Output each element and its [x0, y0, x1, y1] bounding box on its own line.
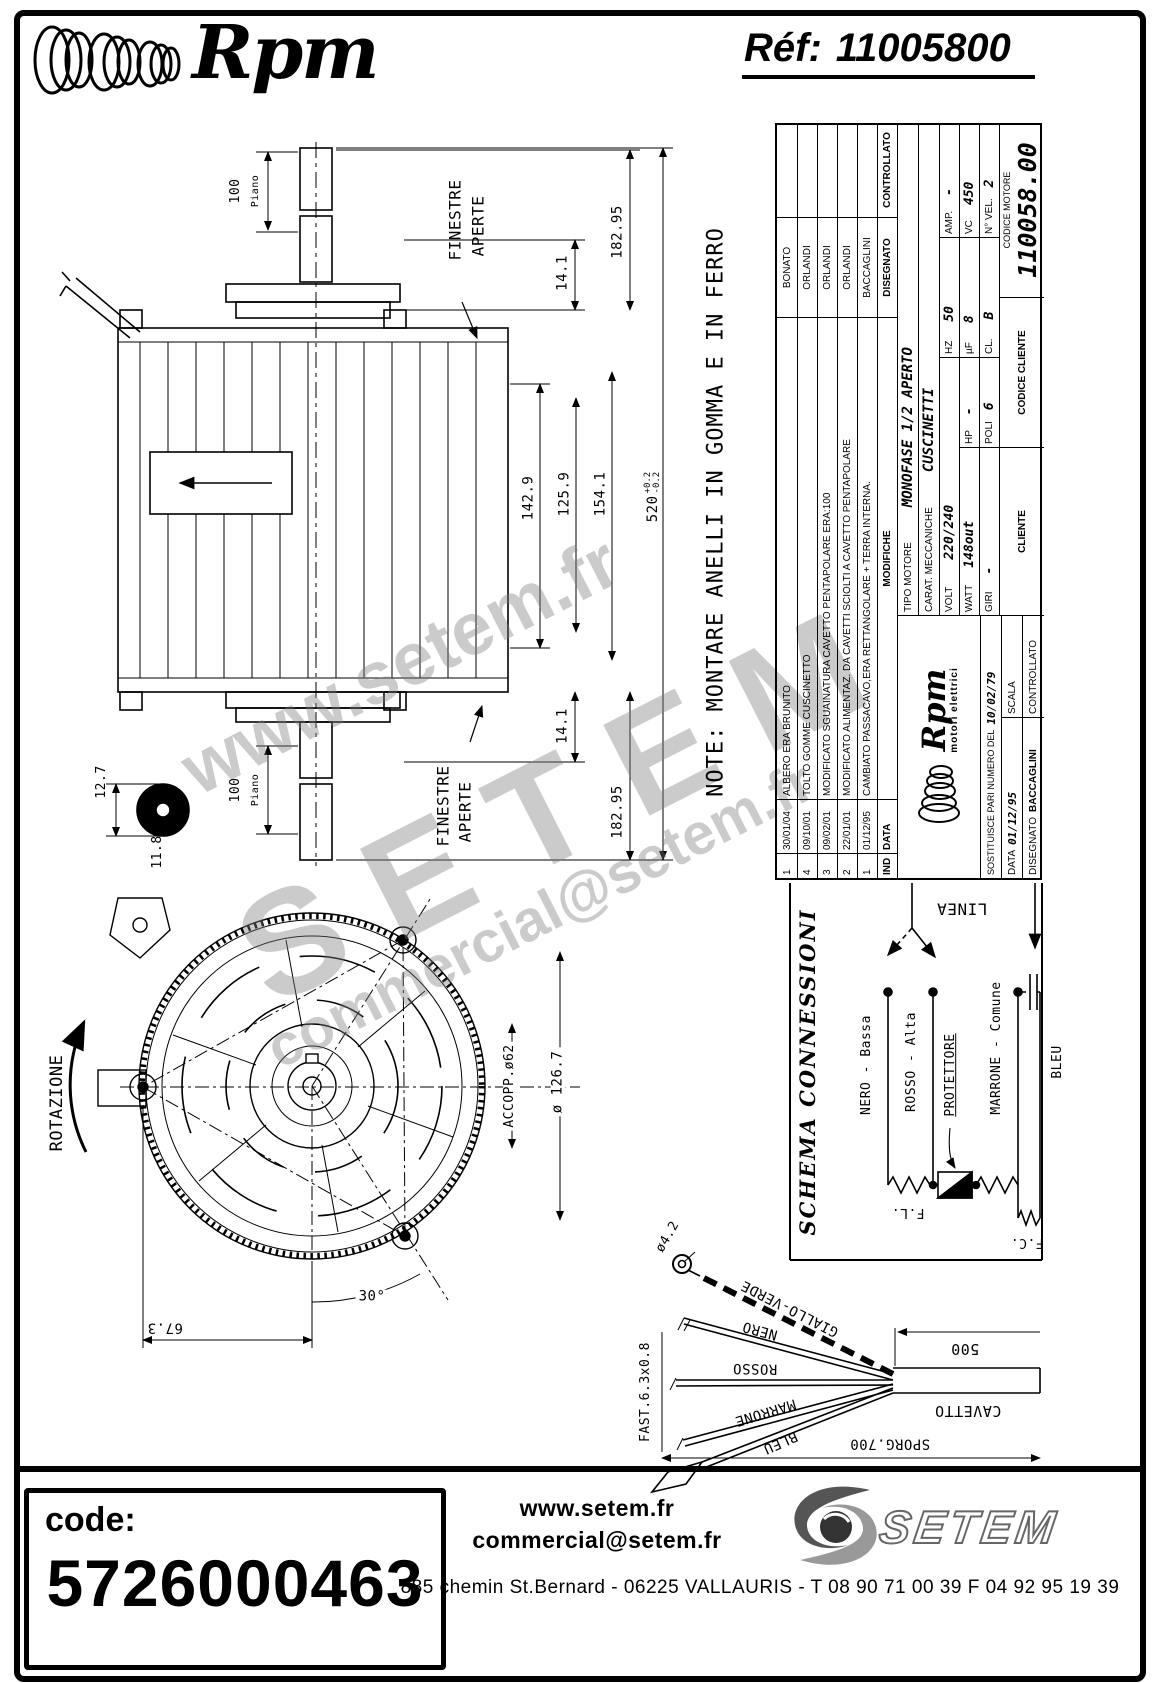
hp-cell: HP-	[959, 358, 979, 448]
rev-header-disegnato: DISEGNATO	[877, 218, 897, 318]
dim-67-3: 67.3	[144, 1320, 186, 1335]
rev-ind: 3	[817, 854, 837, 878]
poli-cell: POLI6	[979, 358, 999, 448]
rev-ind: 1	[777, 854, 797, 878]
rev-text: CAMBIATO PASSACAVO,ERA RETTANGOLARE + TE…	[857, 318, 877, 800]
dim-126-7: ø 126.7	[551, 1048, 566, 1117]
cliente-cell: CLIENTE	[999, 448, 1044, 616]
rev-controllato-cell	[837, 123, 857, 218]
footer-address: 885 chemin St.Bernard - 06225 VALLAURIS …	[401, 1578, 1120, 1598]
dim-520-value: 520	[645, 495, 661, 522]
dim-182-95-top: 182.95	[611, 202, 626, 262]
footer-email: commercial@setem.fr	[472, 1528, 721, 1552]
dim-520-tolerance: +0.2-0.2	[644, 472, 662, 494]
finestre-top-1: FINESTRE	[448, 179, 465, 260]
wire-rosso-alta: ROSSO - Alta	[905, 1012, 919, 1112]
codice-motore-value: 110058.00	[1013, 142, 1042, 277]
rev-date: 30/01/04	[777, 800, 797, 854]
rev-name: BACCAGLINI	[857, 218, 877, 318]
cl-cell: CL.B	[979, 238, 999, 358]
dim-30-deg: 30°	[356, 1290, 389, 1305]
dim-14-1-bottom: 14.1	[556, 705, 571, 747]
dim-12-7: 12.7	[95, 765, 109, 798]
codice-motore-label: CODICE MOTORE	[1002, 172, 1012, 249]
piano-label-bottom: Piano	[251, 774, 262, 807]
rev-controllato-cell	[777, 123, 797, 218]
data-cell: DATA01/12/95	[1001, 718, 1022, 878]
finestre-bottom-1: FINESTRE	[436, 765, 453, 846]
vc-cell: VC450	[959, 123, 979, 238]
rev-ind: 2	[837, 854, 857, 878]
titleblock-rpm-text: Rpm	[919, 667, 949, 752]
fl-label: F.L.	[891, 1205, 924, 1219]
rev-controllato-cell	[797, 123, 817, 218]
rev-date: 09/10/01	[797, 800, 817, 854]
finestre-bottom-2: APERTE	[458, 782, 475, 843]
rpm-coils-small-icon	[911, 763, 967, 827]
dim-accopp-62: ACCOPP.ø62	[503, 1041, 517, 1130]
dim-142-9: 142.9	[522, 473, 537, 524]
sostituisce-cell: SOSTITUISCE PARI NUMERO DEL10/02/79	[980, 616, 1001, 878]
title-block: 1 30/01/04 ALBERO ERA BRUNITO BONATO 4 0…	[775, 123, 1042, 880]
dim-154-1: 154.1	[594, 469, 609, 520]
ref-number-block: Réf:11005800	[742, 26, 1035, 79]
rev-date: 09/02/01	[817, 800, 837, 854]
sporg-label: SPORG.700	[847, 1436, 933, 1451]
rotazione-label: ROTAZIONE	[49, 1055, 67, 1152]
schema-title: SCHEMA CONNESSIONI	[797, 909, 819, 1236]
cavetto-label: CAVETTO	[935, 1402, 1002, 1418]
rev-header-modifiche: MODIFICHE	[877, 318, 897, 800]
rev-name: ORLANDI	[817, 218, 837, 318]
carat-meccaniche-cell: CARAT. MECCANICHE CUSCINETTI	[918, 123, 939, 616]
footer-website: www.setem.fr	[520, 1496, 675, 1520]
rev-controllato-cell	[857, 123, 877, 218]
codice-motore-cell: CODICE MOTORE 110058.00	[999, 123, 1044, 298]
ref-number: 11005800	[836, 26, 1011, 70]
code-label: code:	[45, 1501, 136, 1540]
hz-cell: HZ50	[939, 238, 959, 358]
rev-date: 01/12/95	[857, 800, 877, 854]
controllato-cell: CONTROLLATO	[1022, 616, 1044, 718]
rev-text: ALBERO ERA BRUNITO	[777, 318, 797, 800]
rev-name: ORLANDI	[837, 218, 857, 318]
dim-500: 500	[948, 1340, 983, 1356]
finestre-top-2: APERTE	[471, 196, 488, 257]
code-value: 5726000463	[29, 1545, 441, 1621]
dim-100-bottom: 100	[229, 778, 243, 803]
cable-rosso: ROSSO	[733, 1360, 778, 1375]
rev-ind: 4	[797, 854, 817, 878]
disegnato-cell: DISEGNATOBACCAGLINI	[1022, 718, 1044, 878]
piano-label-top: Piano	[251, 175, 262, 208]
rev-header-ind: IND	[877, 854, 897, 878]
nvel-cell: N° VEL.2	[979, 123, 999, 238]
wire-bleu: BLEU	[1051, 1045, 1065, 1078]
rev-header-data: DATA	[877, 800, 897, 854]
rev-name: ORLANDI	[797, 218, 817, 318]
titleblock-logo-cell: Rpm motori elettrici	[897, 616, 980, 878]
rev-date: 22/01/01	[837, 800, 857, 854]
codice-cliente-cell: CODICE CLIENTE	[999, 298, 1044, 448]
dim-125-9: 125.9	[558, 469, 573, 520]
rev-name: BONATO	[777, 218, 797, 318]
dim-182-95-bottom: 182.95	[611, 782, 626, 842]
volt-cell: VOLT220/240	[939, 358, 959, 616]
amp-cell: AMP.-	[939, 123, 959, 238]
dim-100-top: 100	[229, 179, 243, 204]
note-text: NOTE: MONTARE ANELLI IN GOMMA E IN FERRO	[704, 227, 727, 797]
scala-cell: SCALA	[1001, 616, 1022, 718]
wire-nero-bassa: NERO - Bassa	[860, 1015, 874, 1115]
rev-text: TOLTO GOMME CUSCINETTO	[797, 318, 817, 800]
protettore-label: PROTETTORE	[944, 1033, 958, 1116]
fast-label: FAST.6.3x0.8	[639, 1342, 653, 1442]
footer-divider	[14, 1466, 1140, 1472]
rev-text: MODIFICATO ALIMENTAZ. DA CAVETTI SCIOLTI…	[837, 318, 857, 800]
fc-label: F.C.	[1010, 1235, 1043, 1249]
dim-14-1-top: 14.1	[556, 252, 571, 294]
titleblock-rpm-sub: motori elettrici	[949, 667, 960, 752]
rev-header-controllato: CONTROLLATO	[877, 123, 897, 218]
ref-label: Réf:	[744, 26, 822, 70]
rev-ind: 1	[857, 854, 877, 878]
tipo-motore-cell: TIPO MOTORE MONOFASE 1/2 APERTO	[897, 123, 918, 616]
watt-cell: WATT148out	[959, 448, 979, 616]
giri-cell: GIRI-	[979, 448, 999, 616]
dim-11-8: 11.8	[151, 835, 165, 868]
dim-520: 520+0.2-0.2	[644, 469, 662, 525]
drawing-sheet: www.setem.fr SETEM commercial@setem.fr R…	[0, 0, 1154, 1683]
rev-controllato-cell	[817, 123, 837, 218]
linea-label: LINEA	[937, 900, 988, 917]
rev-text: MODIFICATO SGUAINATURA CAVETTO PENTAPOLA…	[817, 318, 837, 800]
rpm-logo-text: Rpm	[192, 10, 378, 96]
setem-logo-text: SETEM	[876, 1500, 1062, 1554]
wire-marrone-comune: MARRONE - Comune	[990, 981, 1004, 1114]
uf-cell: µF8	[959, 238, 979, 358]
code-box: code: 5726000463	[24, 1488, 446, 1670]
